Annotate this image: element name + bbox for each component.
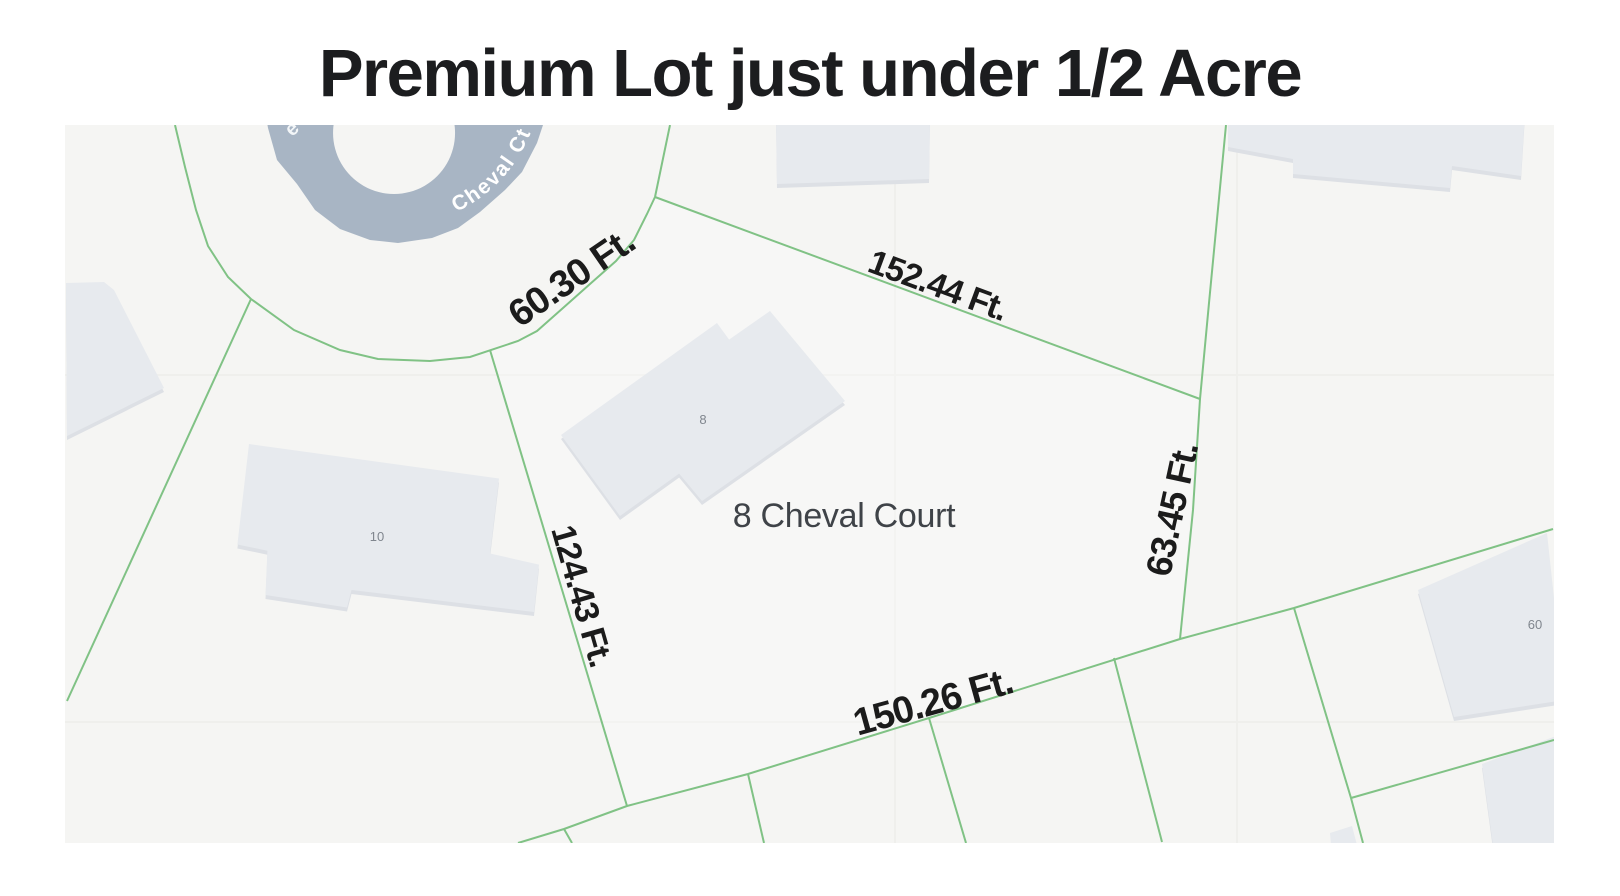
svg-text:8 Cheval Court: 8 Cheval Court [733, 497, 956, 535]
svg-text:8: 8 [699, 412, 706, 427]
svg-text:60: 60 [1528, 617, 1542, 632]
svg-text:10: 10 [370, 529, 384, 544]
